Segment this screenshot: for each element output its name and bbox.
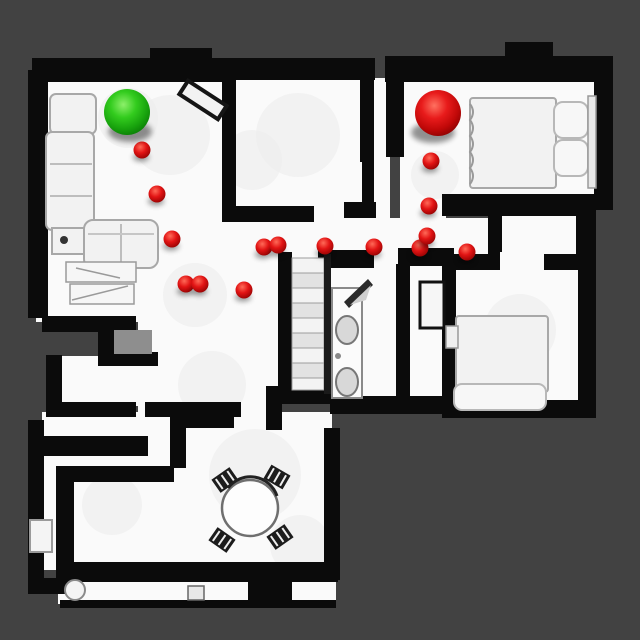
porch-fixture [188,586,204,600]
toilet-fixture [420,282,444,328]
waypoint-marker [317,238,334,255]
sink-1 [336,316,358,344]
nightstand-2 [446,326,458,348]
dining-table [222,480,278,536]
waypoint-marker [134,142,151,159]
floor-lamp-base [65,580,85,600]
headboard-1 [588,96,596,188]
bedroom2-door-gap [500,252,544,272]
scene-viewport[interactable] [0,0,640,640]
start-marker [104,89,150,135]
waypoint-marker [164,231,181,248]
waypoint-marker [236,282,253,299]
middle-room-door-gap [314,204,344,224]
waypoint-marker [423,153,440,170]
wall-unit [30,520,52,552]
waypoint-marker [459,244,476,261]
sink-2 [336,368,358,396]
bed1-duvet [470,98,556,188]
staircase [292,254,331,394]
bed-1 [470,96,596,188]
floorplan-canvas [0,0,640,640]
armchair [50,94,96,134]
waypoint-marker [149,186,166,203]
bed2-duvet [456,316,548,392]
waypoint-marker [421,198,438,215]
pillow-2 [554,140,588,176]
sofa-vertical [46,132,94,230]
pillow-1 [554,102,588,138]
waypoint-marker [270,237,287,254]
waypoint-marker [419,228,436,245]
bed-2 [446,316,548,410]
bed2-comforter [454,384,546,410]
entry-step-notch [114,330,152,354]
waypoint-marker [366,239,383,256]
waypoint-marker [192,276,209,293]
table-lamp [60,236,68,244]
goal-marker [415,90,461,136]
